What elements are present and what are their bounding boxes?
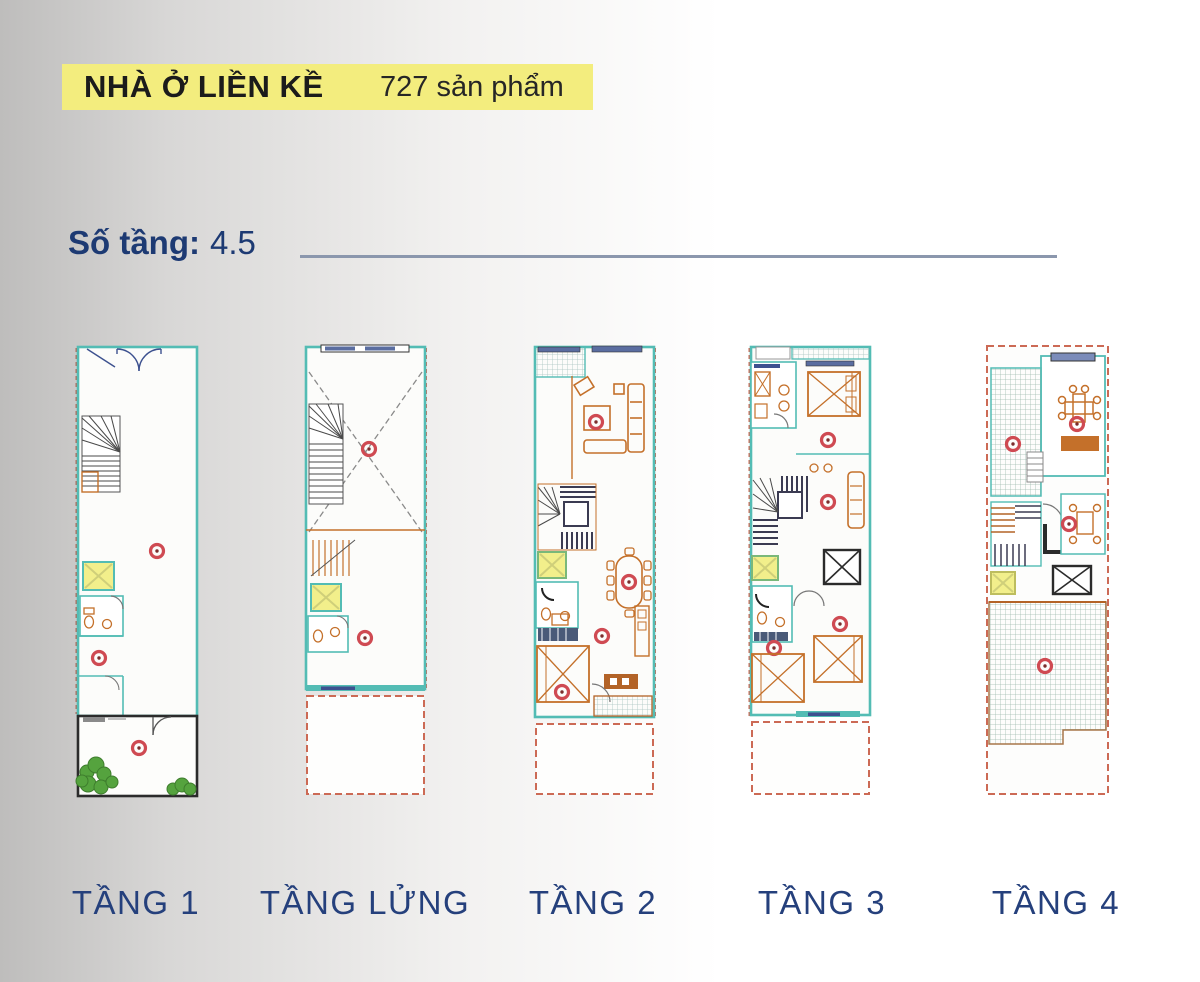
divider-line	[300, 255, 1057, 258]
floors-spec-value: 4.5	[210, 224, 256, 261]
floor-label-tang-1: TẦNG 1	[16, 884, 256, 922]
floor-plan-tang-lung-image	[303, 343, 428, 800]
floor-plan-tang-1[interactable]	[75, 343, 200, 800]
floor-plan-tang-4[interactable]	[985, 343, 1110, 800]
product-count: 727 sản phẩm	[380, 71, 564, 104]
floor-plan-tang-2[interactable]	[532, 343, 657, 800]
floor-plan-tang-4-image	[985, 343, 1110, 800]
floor-plan-tang-3-image	[748, 343, 873, 800]
section-title: NHÀ Ở LIỀN KỀ	[84, 69, 324, 105]
floor-label-tang-lung: TẦNG LỬNG	[245, 884, 485, 922]
section-header: NHÀ Ở LIỀN KỀ 727 sản phẩm	[62, 64, 593, 110]
floor-label-tang-3: TẦNG 3	[702, 884, 942, 922]
floor-label-tang-4: TẦNG 4	[936, 884, 1176, 922]
floor-plan-tang-1-image	[75, 343, 200, 800]
floors-spec-label: Số tầng:	[68, 224, 200, 261]
floor-label-tang-2: TẦNG 2	[473, 884, 713, 922]
floor-plan-tang-3[interactable]	[748, 343, 873, 800]
floor-plan-tang-lung[interactable]	[303, 343, 428, 800]
page: NHÀ Ở LIỀN KỀ 727 sản phẩm Số tầng:4.5	[0, 0, 1200, 982]
floors-spec: Số tầng:4.5	[68, 224, 256, 262]
floor-plan-tang-2-image	[532, 343, 657, 800]
